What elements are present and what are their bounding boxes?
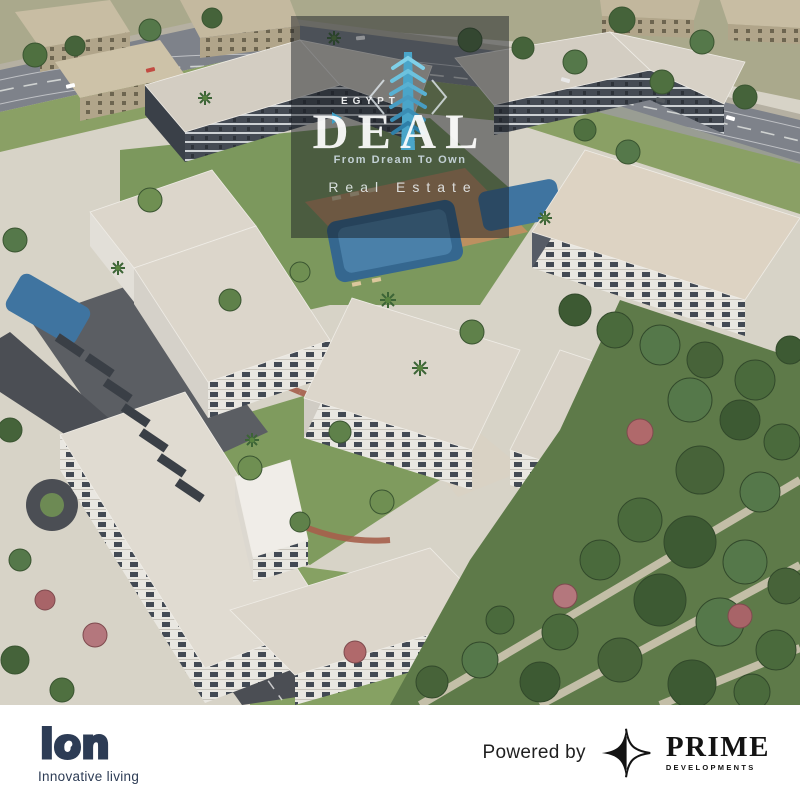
watermark: EGYPT DEAL From Dream To Own Real Estate <box>291 16 509 238</box>
ion-wordmark: ion <box>38 722 148 768</box>
powered-by-label: Powered by <box>482 742 585 764</box>
prime-star-icon <box>600 726 652 780</box>
ion-o-dot <box>66 740 73 747</box>
watermark-deal-label: DEAL <box>313 103 488 159</box>
watermark-subtitle: Real Estate <box>328 179 477 195</box>
prime-name: PRIME <box>666 733 770 762</box>
footer-bar: ion Innovative living Powered by PRIME D… <box>0 705 800 800</box>
ion-wordmark-text: ion <box>40 722 110 768</box>
prime-subtitle: DEVELOPMENTS <box>666 764 770 772</box>
powered-by-block: Powered by PRIME DEVELOPMENTS <box>482 726 770 780</box>
ion-logo: ion Innovative living <box>38 722 148 784</box>
prime-logo: PRIME DEVELOPMENTS <box>666 733 770 772</box>
ion-tagline: Innovative living <box>38 769 148 784</box>
watermark-tagline: From Dream To Own <box>334 154 467 166</box>
aerial-render: EGYPT DEAL From Dream To Own Real Estate <box>0 0 800 705</box>
marketing-image: EGYPT DEAL From Dream To Own Real Estate… <box>0 0 800 800</box>
